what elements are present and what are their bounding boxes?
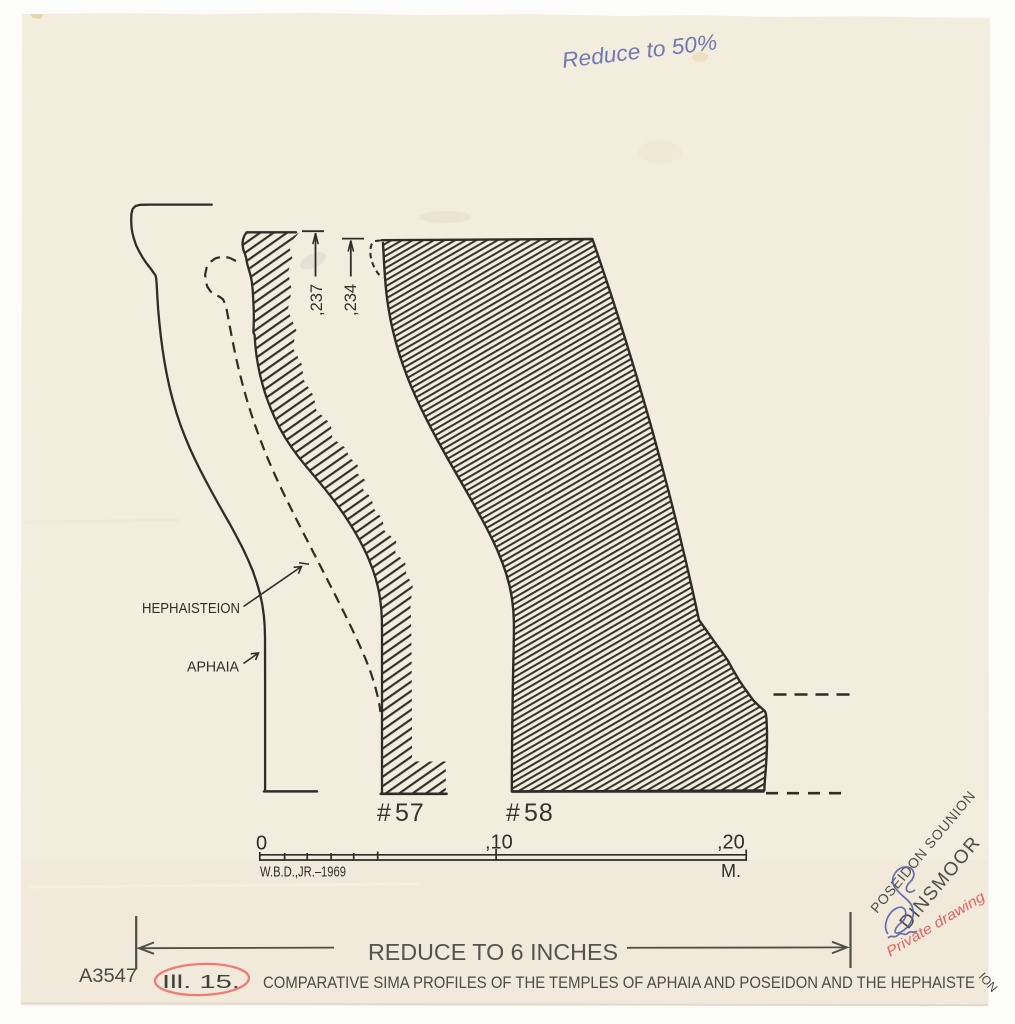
svg-text:,234: ,234: [342, 284, 360, 316]
svg-text:Ill. 15.: Ill. 15.: [162, 971, 240, 992]
svg-text:APHAIA: APHAIA: [187, 660, 239, 676]
svg-text:HEPHAISTEION: HEPHAISTEION: [142, 601, 240, 617]
svg-text:M.: M.: [721, 861, 741, 881]
svg-text:,20: ,20: [717, 832, 745, 854]
svg-text:,10: ,10: [485, 832, 513, 854]
svg-text:,237: ,237: [308, 284, 326, 316]
svg-text:# 57: # 57: [377, 799, 425, 827]
svg-text:REDUCE TO 6 INCHES: REDUCE TO 6 INCHES: [368, 939, 618, 965]
svg-text:A3547: A3547: [79, 966, 137, 987]
svg-text:COMPARATIVE SIMA PROFILES OF T: COMPARATIVE SIMA PROFILES OF THE TEMPLES…: [263, 973, 975, 992]
svg-text:W.B.D.,JR.–1969: W.B.D.,JR.–1969: [260, 864, 346, 881]
svg-text:0: 0: [256, 833, 267, 855]
svg-text:# 58: # 58: [506, 799, 554, 827]
